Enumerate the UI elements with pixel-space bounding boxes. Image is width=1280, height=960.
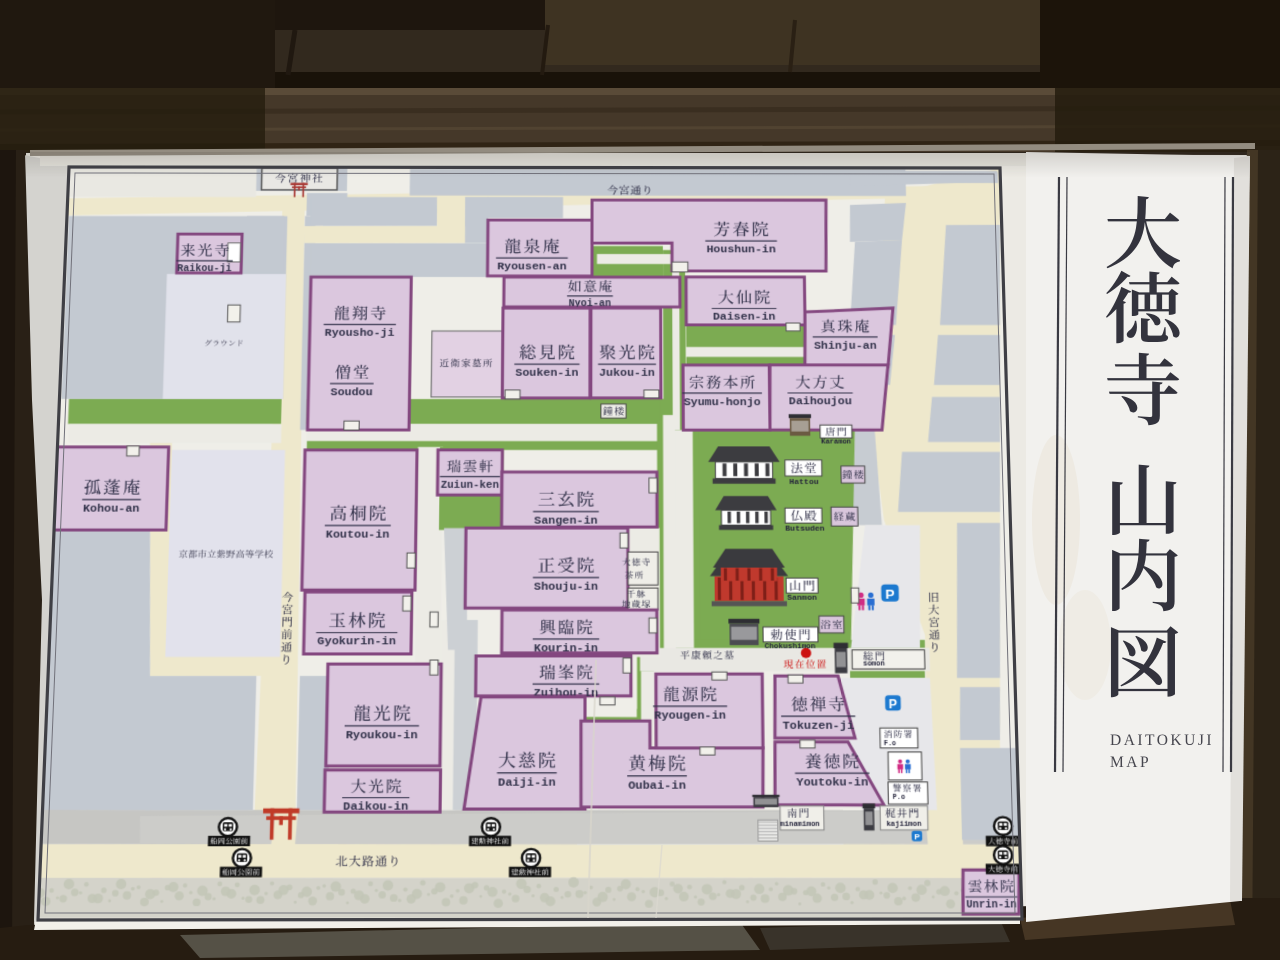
svg-text:MAP: MAP [1110, 754, 1151, 771]
svg-text:DAITOKUJI: DAITOKUJI [1110, 732, 1214, 749]
